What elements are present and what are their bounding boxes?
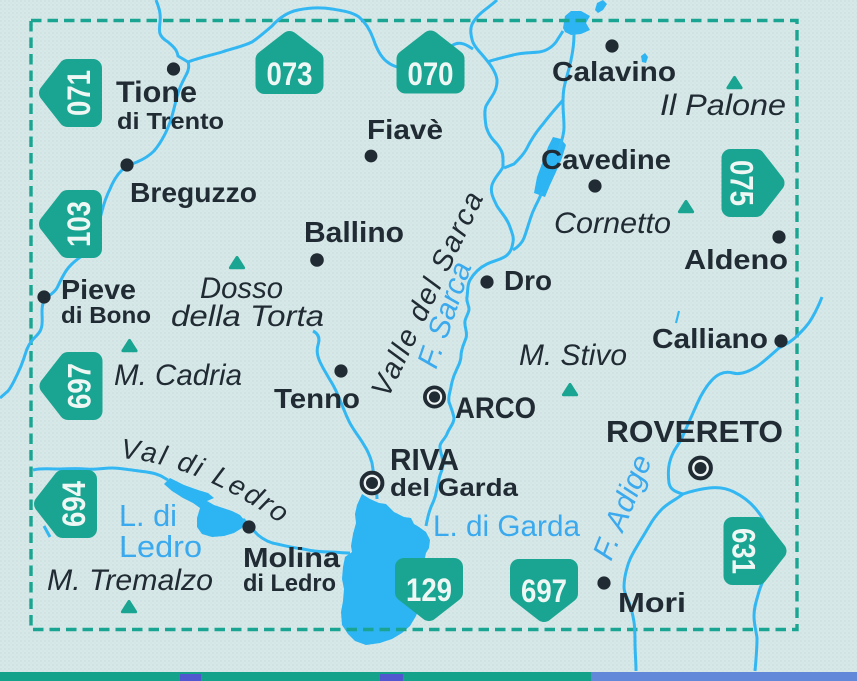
svg-text:Aldeno: Aldeno	[684, 244, 788, 275]
svg-text:Tenno: Tenno	[274, 383, 360, 414]
svg-text:697: 697	[521, 573, 567, 609]
svg-text:M. Cadria: M. Cadria	[114, 359, 242, 392]
svg-text:Mori: Mori	[618, 587, 686, 618]
svg-text:071: 071	[61, 70, 97, 116]
svg-text:Cavedine: Cavedine	[541, 144, 671, 175]
svg-text:Molina: Molina	[243, 542, 340, 573]
svg-text:Fiavè: Fiavè	[367, 114, 443, 145]
svg-text:129: 129	[406, 572, 452, 608]
svg-text:Dro: Dro	[504, 265, 552, 296]
svg-text:073: 073	[267, 56, 313, 92]
svg-text:L. di: L. di	[119, 498, 177, 533]
svg-text:L. di Garda: L. di Garda	[433, 510, 580, 543]
svg-text:Cornetto: Cornetto	[554, 207, 671, 240]
svg-text:Ledro: Ledro	[119, 529, 202, 564]
svg-text:di Bono: di Bono	[61, 302, 151, 328]
svg-text:Calliano: Calliano	[652, 323, 768, 354]
svg-text:Ballino: Ballino	[304, 217, 404, 249]
svg-text:ROVERETO: ROVERETO	[606, 414, 783, 449]
svg-text:M. Tremalzo: M. Tremalzo	[47, 564, 213, 597]
svg-text:del Garda: del Garda	[390, 474, 519, 502]
svg-text:di Ledro: di Ledro	[243, 570, 336, 597]
svg-text:Il Palone: Il Palone	[660, 89, 786, 122]
svg-text:697: 697	[62, 363, 98, 409]
svg-text:070: 070	[408, 56, 454, 92]
svg-text:103: 103	[61, 201, 97, 247]
svg-text:Calavino: Calavino	[552, 56, 676, 87]
svg-text:Breguzzo: Breguzzo	[130, 177, 257, 208]
svg-text:della Torta: della Torta	[171, 300, 324, 333]
svg-text:Tione: Tione	[116, 76, 197, 109]
svg-text:694: 694	[56, 481, 92, 527]
svg-text:631: 631	[726, 528, 762, 574]
svg-text:Pieve: Pieve	[61, 274, 136, 305]
svg-text:ARCO: ARCO	[455, 392, 536, 425]
svg-text:di Trento: di Trento	[117, 108, 224, 134]
svg-text:075: 075	[724, 160, 760, 206]
svg-text:M. Stivo: M. Stivo	[519, 339, 627, 372]
svg-text:RIVA: RIVA	[390, 442, 459, 477]
